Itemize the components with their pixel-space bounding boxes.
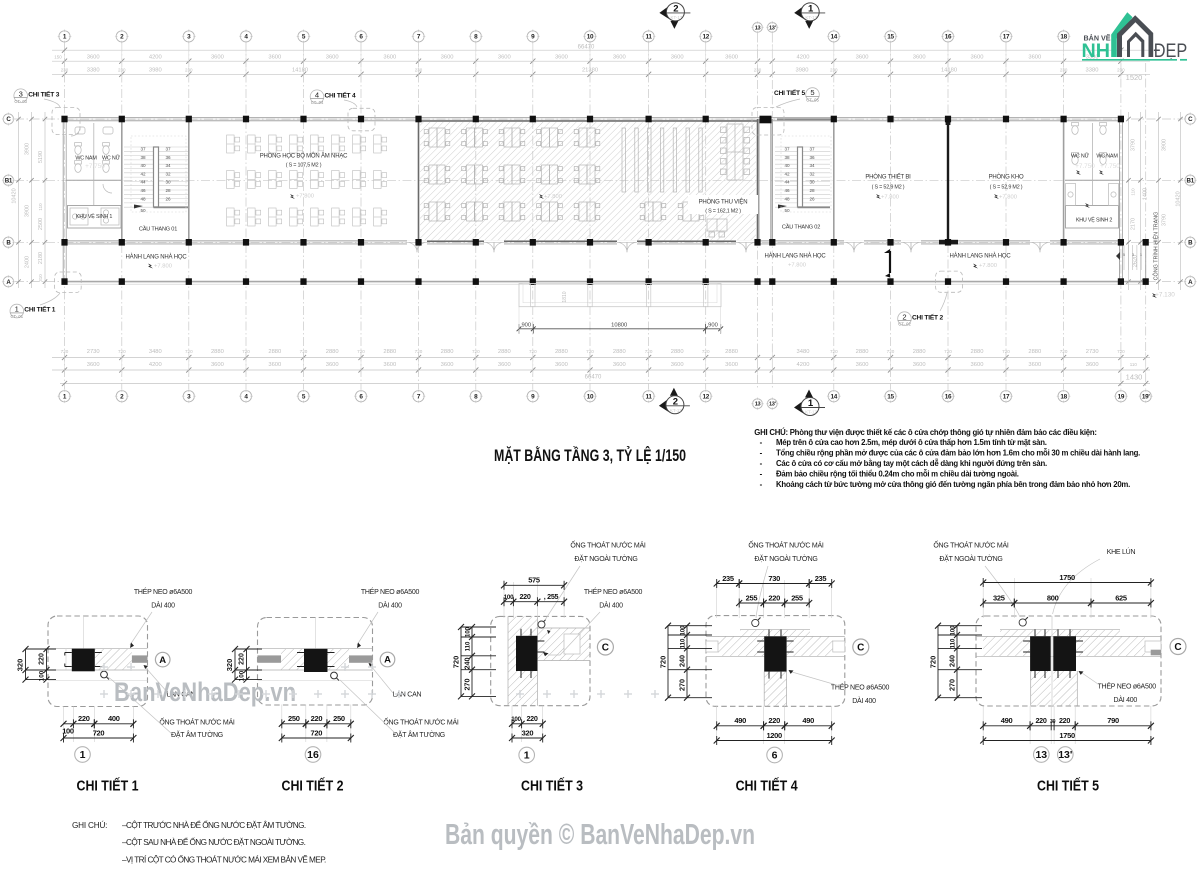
svg-text:13: 13 [755,402,761,408]
svg-text:13: 13 [755,25,761,31]
svg-text:3600: 3600 [856,55,869,61]
svg-text:17: 17 [1003,34,1010,41]
svg-text:3980: 3980 [149,68,162,74]
svg-text:110: 110 [951,638,957,648]
svg-text:720: 720 [452,656,461,669]
svg-text:30: 30 [1050,719,1056,725]
svg-text:A: A [159,655,166,666]
svg-text:KT-17: KT-17 [671,15,683,20]
svg-text:3900: 3900 [25,143,31,155]
svg-text:220: 220 [526,714,537,723]
svg-text:3380: 3380 [1086,68,1099,74]
svg-text:14180: 14180 [292,68,308,74]
svg-text:16: 16 [307,749,319,761]
svg-text:CHI TIẾT 4: CHI TIẾT 4 [736,778,798,795]
svg-text:42: 42 [784,171,790,176]
svg-text:Tổng chiều rộng phần mở được c: Tổng chiều rộng phần mở được của các ô c… [776,448,1140,457]
svg-text:KT-17: KT-17 [805,15,817,20]
svg-text:220: 220 [1059,716,1070,725]
svg-text:HÀNH LANG NHÀ HỌC: HÀNH LANG NHÀ HỌC [765,253,827,260]
svg-text:10420: 10420 [12,188,18,203]
svg-text:15: 15 [887,394,894,401]
svg-text:240: 240 [948,655,957,667]
svg-text:320: 320 [522,728,534,737]
svg-text:1200: 1200 [766,731,782,740]
svg-text:2880: 2880 [971,349,984,355]
svg-text:32: 32 [165,171,171,176]
svg-text:2880: 2880 [555,349,568,355]
svg-text:PHÒNG THIẾT BI: PHÒNG THIẾT BI [865,174,911,181]
svg-text:720: 720 [1117,349,1125,354]
svg-text:490: 490 [734,716,746,725]
svg-text:900: 900 [521,322,531,328]
svg-text:270: 270 [678,679,687,691]
svg-text:230: 230 [185,68,193,73]
svg-text:Các ô cửa có cơ cấu mở bằng ta: Các ô cửa có cơ cấu mở bằng tay một cách… [776,459,1047,468]
svg-text:30: 30 [165,180,171,185]
svg-text:110: 110 [466,641,472,651]
svg-text:235: 235 [815,574,827,583]
svg-text:11: 11 [646,34,653,41]
svg-text:PHÒNG HỌC BỘ MÔN ÂM NHẠC: PHÒNG HỌC BỘ MÔN ÂM NHẠC [260,153,348,160]
svg-text:40: 40 [140,163,146,168]
svg-text:4: 4 [315,90,319,99]
svg-text:150: 150 [54,55,62,60]
svg-text:B1: B1 [5,178,13,185]
svg-text:3: 3 [19,89,23,98]
svg-text:13: 13 [1035,749,1047,761]
svg-text:38: 38 [784,155,790,160]
svg-text:ĐẶT ÂM TƯỜNG: ĐẶT ÂM TƯỜNG [393,730,445,739]
svg-text:100: 100 [681,625,687,636]
svg-text:100: 100 [951,625,957,636]
svg-text:CT- 05: CT- 05 [806,98,819,103]
svg-text:220: 220 [239,653,246,665]
svg-text:325: 325 [993,593,1005,602]
svg-text:320: 320 [16,659,25,672]
svg-text:625: 625 [1115,593,1127,602]
svg-text:4200: 4200 [149,362,162,368]
svg-text:270: 270 [463,679,472,691]
svg-text:230: 230 [1060,68,1068,73]
svg-text:C: C [602,642,609,653]
svg-text:KHU VỆ SINH 1: KHU VỆ SINH 1 [76,212,113,220]
svg-text:GHI CHÚ:: GHI CHÚ: [72,820,107,830]
svg-text:2880: 2880 [441,349,454,355]
svg-text:720: 720 [645,349,653,354]
svg-text:10420: 10420 [1176,191,1182,206]
svg-text:1: 1 [15,305,19,314]
svg-text:1: 1 [80,749,86,761]
svg-text:CHI TIẾT 3: CHI TIẾT 3 [521,778,583,795]
svg-text:LAN CAN: LAN CAN [393,691,422,698]
svg-text:-: - [760,448,763,457]
svg-text:240: 240 [463,658,472,670]
svg-text:WC NAM: WC NAM [75,156,97,162]
svg-text:720: 720 [529,349,537,354]
svg-text:2880: 2880 [725,349,738,355]
svg-text:2730: 2730 [87,349,100,355]
svg-text:34: 34 [809,163,815,168]
svg-text:3600: 3600 [856,362,869,368]
svg-text:ĐẶT NGOÀI TƯỜNG: ĐẶT NGOÀI TƯỜNG [754,554,817,563]
svg-text:2880: 2880 [498,349,511,355]
svg-text:320: 320 [225,659,234,672]
svg-text:3900: 3900 [25,205,31,217]
svg-text:CÔNG TRÌNH HIỆN TRẠNG: CÔNG TRÌNH HIỆN TRẠNG [1152,212,1160,281]
svg-text:3900: 3900 [1162,139,1168,151]
svg-text:37: 37 [809,147,815,152]
svg-text:720: 720 [93,728,105,737]
svg-text:THÉP NEO ø6A500: THÉP NEO ø6A500 [831,683,890,692]
svg-text:2880: 2880 [856,349,869,355]
svg-text:3480: 3480 [797,349,810,355]
svg-text:-: - [760,438,763,447]
svg-text:–CỘT TRƯỚC NHÀ ĐỂ ỐNG NƯỚC ĐẶT: –CỘT TRƯỚC NHÀ ĐỂ ỐNG NƯỚC ĐẶT ÂM TƯỜNG. [122,819,306,830]
svg-text:12: 12 [702,394,709,401]
svg-text:+7.750: +7.750 [85,163,105,170]
svg-text:WC NỮ: WC NỮ [102,155,121,162]
svg-text:1: 1 [808,3,814,14]
svg-text:32: 32 [809,171,815,176]
svg-text:15: 15 [887,34,894,41]
svg-text:14: 14 [831,394,838,401]
svg-text:34: 34 [165,163,171,168]
svg-text:3600: 3600 [1028,362,1041,368]
svg-text:1: 1 [808,398,814,409]
svg-text:2170: 2170 [1131,218,1137,230]
svg-text:CT- 02: CT- 02 [898,322,911,327]
svg-text:3600: 3600 [671,55,684,61]
svg-text:37: 37 [165,147,171,152]
svg-text:40: 40 [784,163,790,168]
svg-text:720: 720 [659,656,668,669]
svg-text:3600: 3600 [326,362,339,368]
svg-text:5190: 5190 [38,151,44,163]
svg-text:2880: 2880 [211,349,224,355]
svg-text:4200: 4200 [797,55,810,61]
svg-text:720: 720 [472,349,480,354]
svg-text:38: 38 [140,155,146,160]
svg-text:16: 16 [945,394,952,401]
svg-text:, 255: , 255 [544,592,559,601]
svg-text:+7.800: +7.800 [979,263,997,269]
svg-text:730: 730 [768,574,780,583]
svg-text:14180: 14180 [941,68,957,74]
svg-text:DÀI 400: DÀI 400 [852,696,876,705]
svg-text:( S = 107,5 M2 ): ( S = 107,5 M2 ) [286,163,322,169]
svg-text:230: 230 [830,68,838,73]
svg-text:3600: 3600 [268,55,281,61]
svg-text:13': 13' [769,402,777,408]
svg-text:720: 720 [830,349,838,354]
svg-text:-: - [760,470,763,479]
svg-text:–VỊ TRÍ CỘT CÓ ỐNG THOÁT NƯỚC: –VỊ TRÍ CỘT CÓ ỐNG THOÁT NƯỚC MÁI XEM BẢ… [122,854,326,865]
svg-text:DÀI 400: DÀI 400 [599,601,623,610]
svg-text:255: 255 [746,593,758,602]
svg-text:+7.750: +7.750 [1100,163,1120,170]
svg-text:ĐẶT NGOÀI TƯỜNG: ĐẶT NGOÀI TƯỜNG [939,554,1002,563]
svg-text:310: 310 [38,274,43,282]
svg-text:KHE LÚN: KHE LÚN [1107,547,1136,556]
svg-text:2880: 2880 [268,349,281,355]
svg-text:240: 240 [678,655,687,667]
svg-text:720: 720 [242,349,250,354]
svg-text:+7.800: +7.800 [999,195,1017,201]
svg-text:1430: 1430 [1126,373,1143,382]
svg-text:3480: 3480 [149,349,162,355]
svg-text:CT- 01: CT- 01 [11,314,24,319]
svg-text:+7.130: +7.130 [1155,292,1175,299]
svg-text:A: A [384,655,391,666]
svg-text:1: 1 [524,750,530,762]
svg-text:36: 36 [165,155,171,160]
svg-text:37: 37 [784,147,790,152]
svg-text:WC NỮ: WC NỮ [1071,153,1090,160]
svg-text:17: 17 [1003,394,1010,401]
svg-text:230: 230 [118,68,126,73]
svg-text:CHI TIẾT 5: CHI TIẾT 5 [1037,778,1099,795]
svg-text:230: 230 [415,68,423,73]
svg-text:48: 48 [784,196,790,201]
svg-text:19: 19 [1118,394,1125,401]
svg-text:CHI TIẾT 2: CHI TIẾT 2 [282,778,344,795]
svg-text:3600: 3600 [1086,362,1099,368]
svg-text:Khoảng cách từ bức tường mở cử: Khoảng cách từ bức tường mở cửa thông gi… [776,480,1130,489]
svg-text:C: C [1174,642,1181,653]
svg-text:THÉP NEO ø6A500: THÉP NEO ø6A500 [134,587,193,596]
svg-text:720: 720 [415,349,423,354]
svg-text:CT- 04: CT- 04 [311,100,324,105]
svg-text:16: 16 [945,34,952,41]
svg-text:3600: 3600 [913,55,926,61]
svg-text:230: 230 [754,68,762,73]
svg-text:CHI TIẾT 1: CHI TIẾT 1 [77,778,139,795]
svg-text:110: 110 [1130,362,1138,367]
svg-text:100: 100 [511,716,521,723]
svg-text:3600: 3600 [441,362,454,368]
svg-text:220: 220 [1035,716,1046,725]
svg-text:720: 720 [185,349,193,354]
svg-text:MẶT BẰNG TẦNG 3, TỶ LỆ 1/150: MẶT BẰNG TẦNG 3, TỶ LỆ 1/150 [494,446,686,465]
svg-text:C: C [857,642,864,653]
svg-text:720: 720 [61,349,69,354]
svg-text:255: 255 [791,593,803,602]
svg-text:HÀNH LANG NHÀ HỌC: HÀNH LANG NHÀ HỌC [126,254,188,261]
svg-text:+7.800: +7.800 [296,194,314,200]
svg-text:KT-17: KT-17 [805,410,817,415]
svg-text:Mép trên ô cửa cao hơn 2.5m, m: Mép trên ô cửa cao hơn 2.5m, mép dưới ô … [776,438,1047,447]
svg-text:+7.800: +7.800 [788,263,806,269]
svg-text:720: 720 [118,349,126,354]
svg-text:WC NAM: WC NAM [1096,154,1118,160]
svg-text:3600: 3600 [671,362,684,368]
svg-text:1400: 1400 [1143,188,1149,200]
svg-text:-: - [760,480,763,489]
svg-text:3600: 3600 [725,362,738,368]
svg-text:5: 5 [810,88,814,97]
svg-text:720: 720 [357,349,365,354]
svg-text:THÉP NEO ø6A500: THÉP NEO ø6A500 [1098,682,1157,691]
svg-text:490: 490 [1001,716,1013,725]
svg-text:2400: 2400 [25,256,31,268]
svg-text:DÀI 400: DÀI 400 [1114,695,1138,704]
svg-text:+7.800: +7.800 [154,264,172,270]
svg-text:CT- 03: CT- 03 [14,99,27,104]
svg-text:18: 18 [1060,394,1067,401]
svg-text:10: 10 [587,34,594,41]
svg-text:+7.800: +7.800 [881,195,899,201]
svg-text:3600: 3600 [211,55,224,61]
svg-text:3600: 3600 [971,55,984,61]
svg-text:44: 44 [140,180,146,185]
svg-text:66470: 66470 [578,44,595,50]
svg-text:CẦU THANG 02: CẦU THANG 02 [782,224,820,231]
svg-text:26: 26 [165,196,171,201]
svg-text:3600: 3600 [211,362,224,368]
svg-text:GHI CHÚ: Phòng thư viện được t: GHI CHÚ: Phòng thư viện được thiết kế cá… [754,428,1096,437]
svg-text:220: 220 [39,653,46,665]
svg-text:3980: 3980 [796,68,809,74]
svg-text:720: 720 [586,349,594,354]
svg-text:3600: 3600 [498,362,511,368]
svg-text:2: 2 [902,312,906,321]
svg-text:720: 720 [929,656,938,669]
svg-text:720: 720 [944,349,952,354]
svg-text:3600: 3600 [441,55,454,61]
svg-text:PHÒNG KHO: PHÒNG KHO [989,174,1024,181]
svg-text:Đảm bảo chiều rộng tối thiểu 0: Đảm bảo chiều rộng tối thiểu 0.24m cho m… [776,470,1019,479]
svg-text:Bản quyền © BanVeNhaDep.vn: Bản quyền © BanVeNhaDep.vn [445,819,755,851]
svg-text:-: - [760,459,763,468]
svg-text:2730: 2730 [1086,349,1099,355]
svg-text:28: 28 [809,188,815,193]
svg-text:220: 220 [768,716,780,725]
svg-text:PHÒNG THU VIỆN: PHÒNG THU VIỆN [699,198,748,206]
svg-text:2880: 2880 [913,349,926,355]
svg-text:HÀNH LANG NHÀ HỌC: HÀNH LANG NHÀ HỌC [950,253,1012,260]
svg-text:220: 220 [78,714,90,723]
svg-text:11: 11 [646,394,653,401]
svg-text:3600: 3600 [613,55,626,61]
svg-text:DÀI 400: DÀI 400 [151,601,175,610]
svg-text:110: 110 [38,203,43,211]
svg-text:250: 250 [288,714,300,723]
svg-text:28: 28 [165,188,171,193]
svg-text:+7.800: +7.800 [544,194,562,200]
svg-text:12: 12 [702,34,709,41]
svg-text:30: 30 [809,180,815,185]
svg-text:3380: 3380 [87,68,100,74]
svg-text:3600: 3600 [383,55,396,61]
svg-text:720: 720 [887,349,895,354]
svg-text:DÀI 400: DÀI 400 [378,601,402,610]
svg-text:46: 46 [784,188,790,193]
svg-text:3600: 3600 [613,362,626,368]
svg-text:NH: NH [1082,40,1111,62]
svg-text:THÉP NEO ø6A500: THÉP NEO ø6A500 [361,587,420,596]
svg-text:110: 110 [1131,188,1136,196]
svg-text:3600: 3600 [1028,55,1041,61]
svg-text:1750: 1750 [1059,573,1075,582]
svg-text:2880: 2880 [383,349,396,355]
svg-text:42: 42 [140,171,146,176]
svg-text:46: 46 [140,188,146,193]
svg-text:36: 36 [809,155,815,160]
svg-text:ĐẶT NGOÀI TƯỜNG: ĐẶT NGOÀI TƯỜNG [574,554,637,563]
svg-text:100: 100 [504,594,514,601]
svg-text:220: 220 [768,593,780,602]
svg-text:( S = 52,9 M2 ): ( S = 52,9 M2 ) [990,185,1023,191]
svg-text:2180: 2180 [38,252,44,264]
svg-text:+7.750: +7.750 [1075,163,1095,170]
svg-text:2880: 2880 [326,349,339,355]
svg-text:3790: 3790 [1162,214,1168,226]
svg-text:3600: 3600 [913,362,926,368]
svg-text:18: 18 [1060,34,1067,41]
svg-text:2: 2 [673,396,678,407]
svg-text:400: 400 [108,714,120,723]
svg-text:720: 720 [1002,349,1010,354]
svg-text:3600: 3600 [498,55,511,61]
svg-text:4200: 4200 [149,55,162,61]
svg-text:1810: 1810 [562,291,568,302]
svg-text:250: 250 [333,714,345,723]
svg-text:3600: 3600 [555,55,568,61]
svg-text:ĐẶT ÂM TƯỜNG: ĐẶT ÂM TƯỜNG [171,730,223,739]
svg-text:10: 10 [587,394,594,401]
svg-text:44: 44 [784,180,790,185]
svg-text:KHU VỆ SINH 2: KHU VỆ SINH 2 [1076,216,1113,224]
svg-text:37: 37 [140,147,146,152]
svg-text:3600: 3600 [87,362,100,368]
svg-text:100: 100 [466,626,472,637]
svg-text:790: 790 [1107,716,1119,725]
svg-text:48: 48 [140,196,146,201]
svg-text:3790: 3790 [1131,139,1137,151]
svg-text:1750: 1750 [1059,731,1075,740]
svg-text:3600: 3600 [87,55,100,61]
svg-text:230: 230 [61,68,69,73]
svg-text:100: 100 [39,670,46,681]
svg-text:BanVeNhaDep.vn: BanVeNhaDep.vn [114,677,296,707]
svg-text:3600: 3600 [383,362,396,368]
svg-text:490: 490 [802,716,814,725]
svg-text:110: 110 [681,638,687,648]
svg-text:14: 14 [831,34,838,41]
svg-text:235: 235 [722,574,734,583]
svg-text:66470: 66470 [585,375,602,381]
svg-text:6: 6 [772,750,778,762]
svg-text:3600: 3600 [725,55,738,61]
svg-text:( S = 162,1 M2 ): ( S = 162,1 M2 ) [705,209,741,215]
svg-text:900: 900 [708,322,718,328]
svg-text:13': 13' [1058,749,1072,761]
svg-text:19': 19' [1142,394,1151,401]
svg-text:21380: 21380 [582,68,598,74]
svg-text:2500: 2500 [38,218,44,230]
svg-text:575: 575 [528,576,540,585]
svg-text:KT-17: KT-17 [670,408,682,413]
svg-text:2880: 2880 [671,349,684,355]
svg-text:1520: 1520 [1126,73,1143,82]
svg-text:3600: 3600 [268,362,281,368]
svg-text:3600: 3600 [971,362,984,368]
svg-text:800: 800 [1047,593,1059,602]
svg-text:2880: 2880 [1028,349,1041,355]
svg-text:4200: 4200 [797,362,810,368]
svg-text:720: 720 [310,728,322,737]
